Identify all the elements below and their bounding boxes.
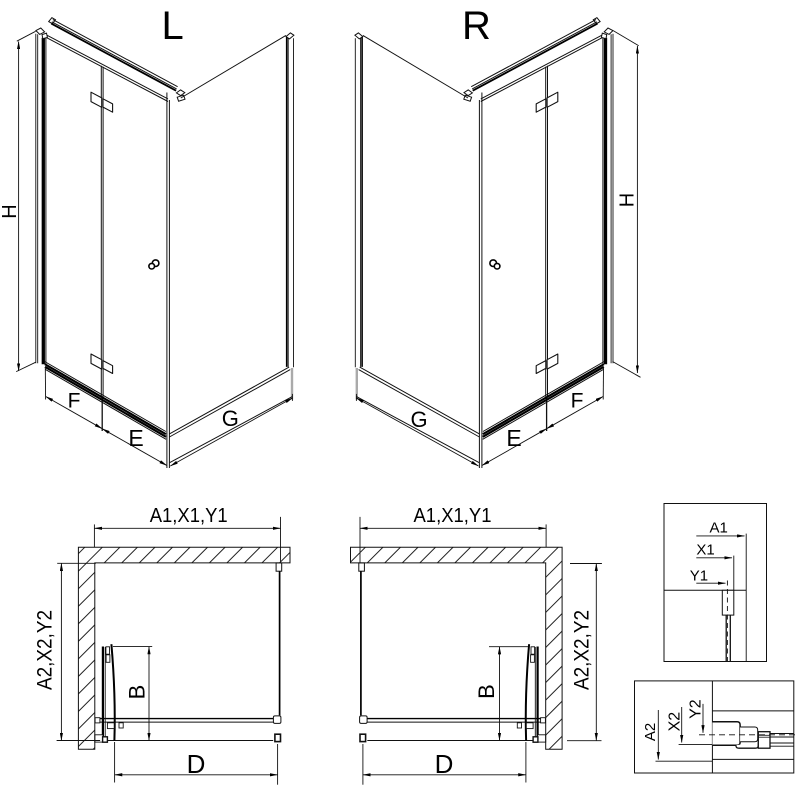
- svg-text:A2,X2,Y2: A2,X2,Y2: [571, 610, 594, 690]
- svg-text:H: H: [617, 193, 639, 207]
- svg-text:X2: X2: [667, 712, 684, 732]
- svg-text:G: G: [410, 407, 427, 432]
- svg-text:A2: A2: [642, 723, 659, 741]
- svg-text:A2,X2,Y2: A2,X2,Y2: [34, 610, 57, 690]
- svg-text:R: R: [462, 4, 491, 48]
- svg-text:H: H: [0, 204, 21, 218]
- svg-text:D: D: [187, 749, 206, 779]
- svg-text:E: E: [506, 425, 521, 451]
- svg-text:X1: X1: [696, 541, 714, 558]
- svg-text:B: B: [474, 684, 499, 699]
- svg-text:A1: A1: [710, 520, 728, 537]
- svg-text:A1,X1,Y1: A1,X1,Y1: [150, 505, 228, 527]
- svg-text:D: D: [435, 749, 454, 779]
- svg-text:Y1: Y1: [690, 567, 708, 584]
- svg-text:E: E: [128, 425, 143, 451]
- svg-text:L: L: [161, 4, 183, 48]
- svg-text:Y2: Y2: [688, 699, 705, 719]
- svg-text:F: F: [68, 390, 81, 413]
- svg-text:B: B: [125, 685, 150, 700]
- svg-text:G: G: [222, 406, 239, 431]
- svg-text:F: F: [571, 390, 584, 413]
- svg-text:A1,X1,Y1: A1,X1,Y1: [414, 505, 492, 527]
